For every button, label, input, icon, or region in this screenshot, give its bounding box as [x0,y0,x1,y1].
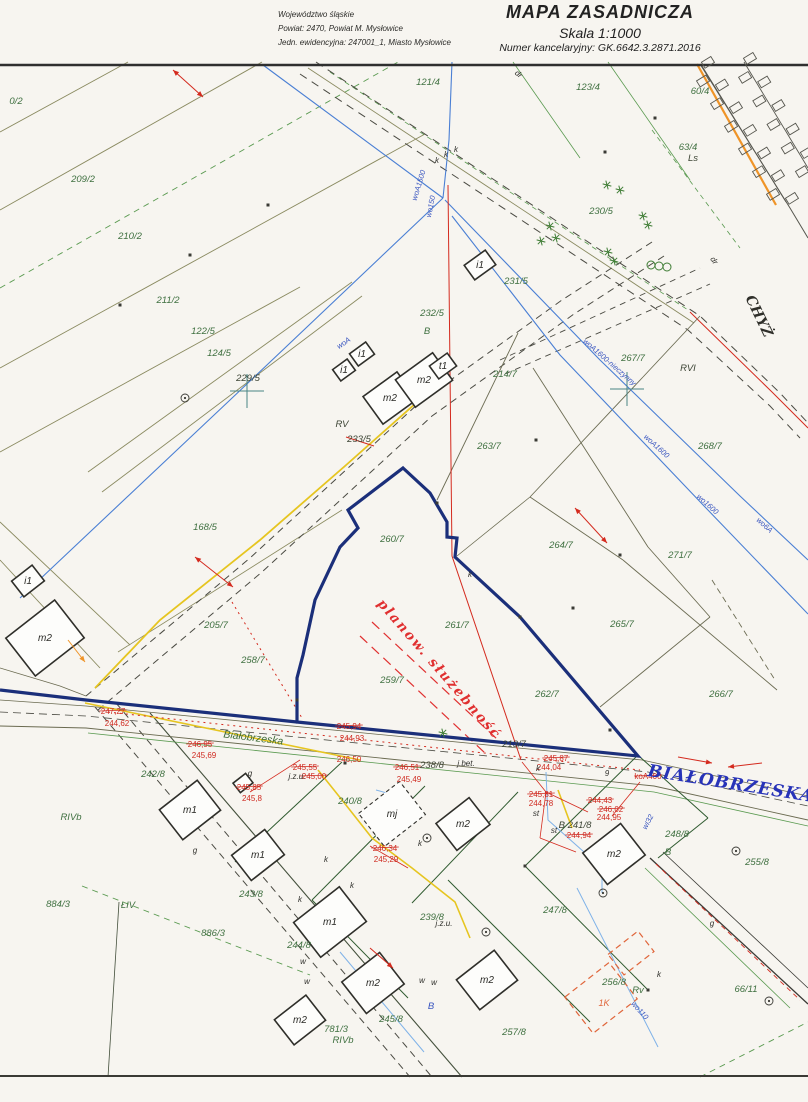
map-line [86,242,652,696]
elevation-label: 245,49 [397,775,422,784]
elevation-label: 245,87 [544,754,569,763]
boundary-point [609,729,612,732]
building-label: m1 [323,917,337,928]
point-marker-dot [485,931,487,933]
building-row-tooth [758,76,771,88]
map-line [457,497,530,556]
map-text: j.z.u. [288,772,306,781]
elevation-label: 245,55 [293,763,318,772]
elevation-label: 244,93 [340,734,365,743]
building-label: m2 [480,975,494,986]
parcel-label: 271/7 [667,550,692,561]
building-label: i1 [24,576,32,587]
building-label: m1 [183,805,197,816]
map-text: w [304,977,311,986]
parcel-label: 121/4 [416,77,440,88]
parcel-label: 264/7 [548,540,573,551]
parcel-label: RIVb [332,1035,353,1046]
registry-number: Numer kancelaryjny: GK.6642.3.2871.2016 [430,42,770,54]
point-marker-dot [184,397,186,399]
map-text: w [300,957,307,966]
map-text: k [435,156,440,165]
parcel-label: 248/8 [664,829,689,840]
map-line [690,312,808,428]
map-text: k [324,855,329,864]
building-label: m2 [366,978,380,989]
tree-symbol [605,249,611,255]
shrub-symbol [647,261,655,269]
building-label: i1 [340,365,348,376]
building-label: m2 [293,1015,307,1026]
building-row-tooth [772,100,785,112]
elevation-label: 245,00 [302,772,327,781]
utility-label: wo150 [424,194,438,218]
map-text: g [710,919,715,928]
parcel-label: 255/8 [744,857,769,868]
map-text: k [454,145,459,154]
map-line [82,886,310,975]
point-marker-dot [735,850,737,852]
building-label: m1 [251,850,265,861]
map-line [0,62,262,210]
map-line [0,62,398,288]
map-text: 1K [598,998,610,1008]
parcel-label: 261/7 [444,620,469,631]
boundary-point [189,254,192,257]
tree-symbol [553,235,559,241]
parcel-label: 60/4 [691,86,710,97]
elevation-label: 246,95 [188,740,213,749]
elevation-label: 244,04 [537,763,562,772]
map-line [330,72,688,310]
building-row-tooth [743,124,756,136]
boundary-point [619,554,622,557]
boundary-point [267,204,270,207]
building-row-tooth [781,142,794,154]
map-line [316,62,808,423]
elevation-label: 245,69 [192,751,217,760]
parcel-label: 66/11 [734,984,757,995]
building-label: m2 [38,633,52,644]
map-text: j.z.u. [435,919,453,928]
parcel-label: 214/7 [492,369,517,380]
map-text: g [193,846,198,855]
map-line [700,1022,808,1077]
building-row-tooth [767,119,780,131]
map-line [108,902,119,1077]
parcel-label: 266/7 [708,689,733,700]
boundary-point [296,699,299,702]
map-line [85,703,360,760]
map-text: k [350,881,355,890]
survey-arrow [173,70,203,97]
boundary-point [604,151,607,154]
map-line [650,858,808,1004]
tree-symbol [538,238,544,244]
elevation-label: 246,50 [337,755,362,764]
boundary-point [535,439,538,442]
parcel-label: RIVb [60,812,81,823]
utility-label: wI32 [640,812,656,831]
elevation-label: 244,43 [588,796,613,805]
map-text: st [551,826,558,835]
building-row-tooth [795,166,808,178]
parcel-label: 884/3 [46,899,70,910]
building-label: mj [387,809,398,820]
map-text: k [657,970,662,979]
parcel-label: 263/7 [476,441,501,452]
tree-symbol [617,187,623,193]
map-text: st [533,809,540,818]
parcel-label: 245/8 [378,1014,403,1025]
map-line [530,377,643,497]
map-line [645,868,790,1008]
admin-info: Województwo śląskie Powiat: 2470, Powiat… [278,8,451,50]
parcel-label: B [665,847,672,858]
elevation-label: 244,95 [597,813,622,822]
map-text: dr [708,255,720,266]
survey-arrow [195,557,233,587]
parcel-label: 0/2 [9,96,23,107]
map-line [663,852,808,988]
parcel-label: B [424,326,431,337]
parcel-label: 256/8 [601,977,626,988]
parcel-label: RV [335,419,350,430]
shrub-symbol [655,262,663,270]
region-line: Województwo śląskie [278,8,451,22]
parcel-label: 243/8 [238,889,263,900]
elevation-label: 246,51 [395,763,420,772]
building-row-tooth [786,123,799,135]
map-text: k [418,839,423,848]
elevation-label: 245,8 [242,794,263,803]
map-text: k [298,895,303,904]
building-row-tooth [739,72,752,84]
tree-symbol [640,213,646,219]
map-text: dr [513,68,524,80]
building-row-tooth [715,79,728,91]
boundary-point [436,502,439,505]
parcel-label: Ls [688,153,698,164]
parcel-label: 265/7 [609,619,634,630]
parcel-label: 244/8 [286,940,311,951]
map-canvas: i1i1i1m2m2t1i1m2m1m1m1m2m2m2mjm2m20/2209… [0,0,808,1102]
elevation-label: 247,27 [101,707,126,716]
building-label: m2 [383,393,397,404]
building-row-line [702,66,786,202]
building-row-tooth [753,95,766,107]
street-name: CHYŻ [742,291,779,340]
map-line [448,880,590,1022]
parcel-label: 168/5 [193,522,217,533]
parcel-label: 260/7 [379,534,404,545]
parcel-label: B 241/8 [559,820,592,831]
parcel-label: 259/7 [379,675,404,686]
map-title: MAPA ZASADNICZA [430,2,770,23]
parcel-label: 258/7 [240,655,265,666]
parcel-label: 247/8 [542,905,567,916]
elevation-label: 246,34 [373,844,398,853]
elevation-label: 244,62 [105,719,130,728]
boundary-street-line [0,690,297,722]
map-line [608,62,690,180]
building-label: m2 [417,375,431,386]
map-text: w [419,976,426,985]
boundary-point [519,616,522,619]
building-label: m2 [607,849,621,860]
map-line [513,62,580,158]
map-text: 9 [605,769,610,778]
utility-label: wo6A [755,516,775,535]
map-text: j.bet. [456,759,474,768]
map-scale: Skala 1:1000 [430,25,770,41]
map-line [300,74,800,438]
parcel-label: ŁIV [121,900,137,911]
parcel-label: 886/3 [201,928,225,939]
parcel-label: 205/7 [203,620,228,631]
elevation-label: 245,85 [237,783,262,792]
parcel-label: 210/2 [117,231,142,242]
map-text: w [431,978,438,987]
map-line [656,864,800,1000]
map-line [533,368,648,547]
parcel-label: 123/4 [576,82,600,93]
boundary-point [119,304,122,307]
map-page: i1i1i1m2m2t1i1m2m1m1m1m2m2m2mjm2m20/2209… [0,0,808,1102]
utility-label: wo1600 [695,492,721,517]
parcel-label: 124/5 [207,348,231,359]
elevation-label: 244,78 [529,799,554,808]
boundary-point [647,989,650,992]
building-label: i1 [476,260,484,271]
building-row-tooth [771,170,784,182]
parcel-label: 257/8 [501,1027,526,1038]
building-label: t1 [439,361,447,372]
building-row-line [744,62,808,168]
survey-arrow-head [728,764,734,769]
building-row-tooth [757,147,770,159]
parcel-label: B [428,1001,435,1012]
point-marker-dot [426,837,428,839]
parcel-label: 122/5 [191,326,215,337]
street-name: BIAŁOBRZESKA [645,761,808,807]
boundary-point [524,865,527,868]
shrub-symbol [663,263,671,271]
utility-label: woA [335,335,352,351]
parcel-label: 209/2 [70,174,95,185]
parcel-label: 230/5 [588,206,613,217]
parcel-label: 268/7 [697,441,722,452]
parcel-label: 211/2 [155,295,180,306]
map-line [530,497,623,560]
boundary-point [572,607,575,610]
parcel-label: 231/5 [503,276,528,287]
building-row-tooth [729,102,742,114]
map-line [88,282,352,472]
parcel-label: RVI [680,363,696,374]
parcel-label: 233/5 [346,434,371,445]
survey-arrow [575,508,607,543]
elevation-label: 245,81 [529,790,554,799]
building-row-tooth [785,192,798,204]
parcel-label: 229/5 [235,373,260,384]
point-marker-dot [602,892,604,894]
parcel-label: Rv [632,985,645,996]
parcel-label: 232/5 [419,308,444,319]
point-marker-dot [768,1000,770,1002]
parcel-label: 213/7 [501,739,526,750]
parcel-label: 238/8 [419,760,444,771]
map-text: g [248,769,253,778]
tree-symbol [645,222,651,228]
parcel-label: 63/4 [679,142,698,153]
map-header: Województwo śląskie Powiat: 2470, Powiat… [0,0,808,64]
elevation-label: 245,94 [337,722,362,731]
map-line [102,296,362,492]
easement-annotation: planow. służebność [374,596,505,743]
title-block: MAPA ZASADNICZA Skala 1:1000 Numer kance… [430,2,770,54]
utility-label: wo110 [629,999,651,1022]
map-line [600,617,710,707]
parcel-label: 242/8 [140,769,165,780]
map-line [443,62,452,198]
parcel-label: 267/7 [620,353,645,364]
survey-arrow-head [79,656,85,662]
elevation-label: 245,29 [374,855,399,864]
tree-symbol [604,182,610,188]
planned-building [608,931,654,975]
elevation-label: 244,94 [567,831,592,840]
map-line [308,68,694,323]
parcel-label: 240/8 [337,796,362,807]
building-label: i1 [358,349,366,360]
survey-arrow-head [706,759,712,764]
county-line: Powiat: 2470, Powiat M. Mysłowice [278,22,451,36]
map-line [500,268,700,360]
map-line [712,580,775,680]
unit-line: Jedn. ewidencyjna: 247001_1, Miasto Mysł… [278,36,451,50]
parcel-label: 781/3 [324,1024,348,1035]
map-line [525,866,648,990]
parcel-label: 262/7 [534,689,559,700]
building-label: m2 [456,819,470,830]
boundary-point [654,117,657,120]
